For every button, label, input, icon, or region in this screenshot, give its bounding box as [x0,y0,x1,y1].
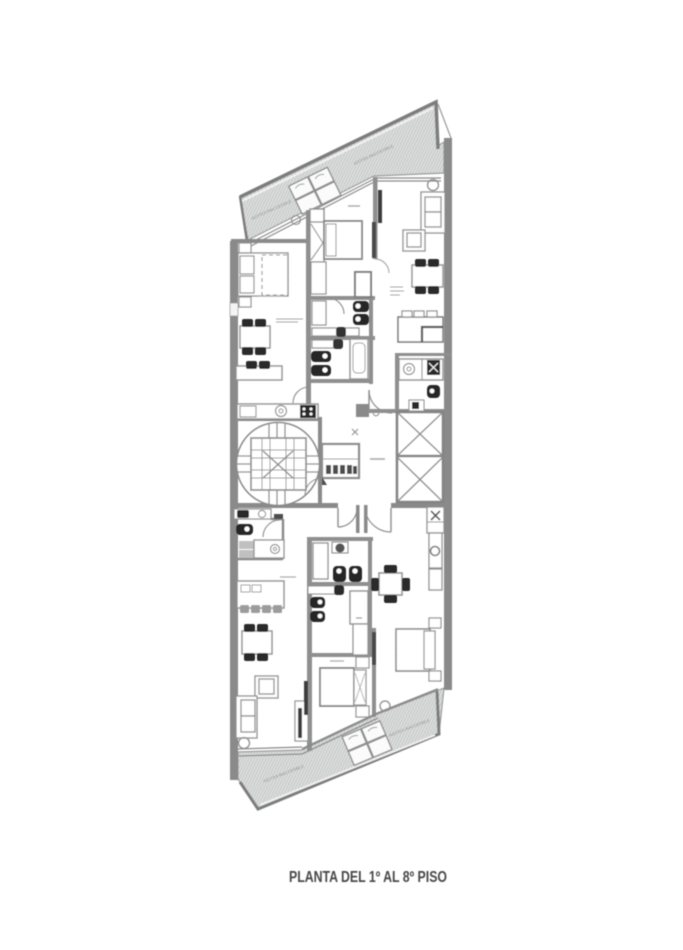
svg-text:PLANTA DEL 1º AL 8º PISO: PLANTA DEL 1º AL 8º PISO [289,869,447,886]
